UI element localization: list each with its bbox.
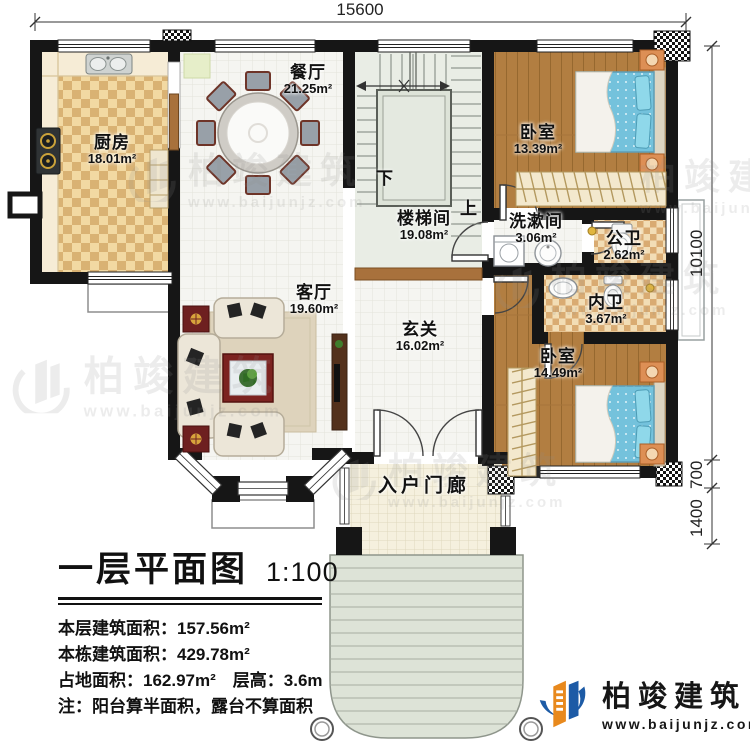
nightstand bbox=[640, 444, 664, 464]
watermark-logo-icon bbox=[12, 352, 72, 412]
wood-beam bbox=[355, 268, 482, 280]
room-label-inner-bath: 内卫 3.67m² bbox=[585, 294, 626, 326]
title-block: 一层平面图 1:100 本层建筑面积：157.56m² 本栋建筑面积：429.7… bbox=[58, 541, 339, 720]
stair-down-label: 下 bbox=[376, 164, 393, 189]
room-label-dining: 餐厅 21.25m² bbox=[284, 64, 332, 96]
entry-steps bbox=[311, 555, 542, 740]
tv-cabinet bbox=[332, 334, 347, 430]
room-label-public-bath: 公卫 2.62m² bbox=[603, 230, 644, 262]
room-label-kitchen: 厨房 18.01m² bbox=[88, 134, 136, 166]
room-label-foyer: 玄关 16.02m² bbox=[396, 321, 444, 353]
floor-drain bbox=[588, 227, 596, 235]
brand-url: www.baijunjz.com bbox=[602, 716, 750, 732]
brand-logo: 柏竣建筑 www.baijunjz.com bbox=[532, 671, 750, 733]
dimension-top: 15600 bbox=[320, 0, 400, 20]
sofa-top bbox=[214, 298, 284, 338]
wall-niche bbox=[10, 194, 40, 216]
page-title: 一层平面图 bbox=[58, 541, 248, 592]
pillow bbox=[635, 114, 651, 149]
stove bbox=[36, 128, 60, 174]
floor-plan: 柏竣建筑www.baijunjz.com 柏竣建筑www.baijunjz.co… bbox=[0, 0, 750, 752]
watermark: 柏竣建筑www.baijunjz.com bbox=[12, 344, 282, 421]
drawing-scale: 1:100 bbox=[266, 557, 339, 588]
nightstand bbox=[640, 50, 664, 70]
room-label-stairwell: 楼梯间 19.08m² bbox=[397, 210, 451, 242]
window-bedroom-top bbox=[537, 40, 633, 52]
brand-logo-icon bbox=[532, 671, 594, 733]
end-table-bottom bbox=[183, 426, 209, 452]
dimension-right-bottom: 1400 bbox=[688, 492, 705, 544]
watermark-logo-icon bbox=[495, 262, 541, 308]
room-label-bedroom-bottom: 卧室 14.49m² bbox=[534, 348, 582, 380]
stat-line: 本层建筑面积：157.56m² bbox=[58, 616, 339, 642]
title-underline-2 bbox=[58, 603, 322, 605]
room-label-bedroom-top: 卧室 13.39m² bbox=[514, 124, 562, 156]
watermark: 柏竣建筑www.baijunjz.com bbox=[128, 142, 365, 211]
dimension-right-main: 10100 bbox=[688, 208, 705, 298]
stat-line: 占地面积：162.97m² 层高：3.6m bbox=[58, 668, 339, 694]
room-label-washroom: 洗漱间 3.06m² bbox=[509, 213, 563, 245]
window-dining-top bbox=[215, 40, 315, 52]
window-stair-top bbox=[378, 40, 470, 52]
end-table-top bbox=[183, 306, 209, 332]
watermark: 柏竣建筑www.baijunjz.com bbox=[640, 148, 750, 217]
window-kitchen-top bbox=[58, 40, 150, 52]
stair-up-label: 上 bbox=[460, 194, 477, 219]
stat-line: 注：阳台算半面积，露台不算面积 bbox=[58, 694, 339, 720]
floor-mat bbox=[184, 54, 210, 78]
pillow bbox=[635, 76, 651, 111]
kitchen-sink bbox=[86, 54, 132, 74]
brand-name: 柏竣建筑 bbox=[602, 673, 750, 715]
title-underline bbox=[58, 597, 322, 600]
room-label-living: 客厅 19.60m² bbox=[290, 284, 338, 316]
sliding-door-kitchen bbox=[168, 62, 180, 150]
window-kitchen-bottom bbox=[88, 272, 172, 284]
headboard bbox=[654, 68, 665, 156]
stat-line: 本栋建筑面积：429.78m² bbox=[58, 642, 339, 668]
nightstand bbox=[640, 362, 664, 382]
pillow bbox=[635, 390, 651, 423]
watermark-logo-icon bbox=[332, 454, 378, 500]
tv bbox=[334, 364, 340, 402]
room-label-porch: 入户门廊 bbox=[378, 477, 470, 498]
plan-stats: 本层建筑面积：157.56m² 本栋建筑面积：429.78m² 占地面积：162… bbox=[58, 616, 339, 720]
